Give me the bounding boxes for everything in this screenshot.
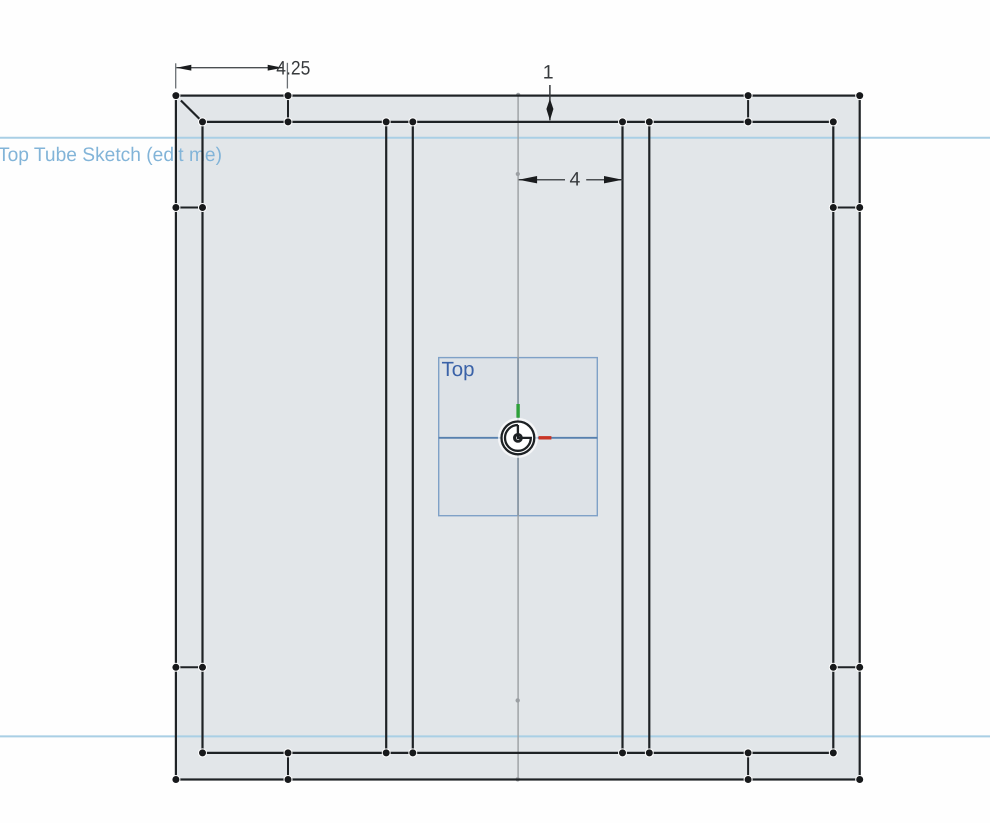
svg-text:Top: Top [442,358,475,381]
svg-text:Top Tube Sketch (edit me): Top Tube Sketch (edit me) [0,144,222,166]
svg-text:4.25: 4.25 [276,58,310,80]
svg-text:4: 4 [570,169,581,191]
svg-text:1: 1 [543,61,554,83]
